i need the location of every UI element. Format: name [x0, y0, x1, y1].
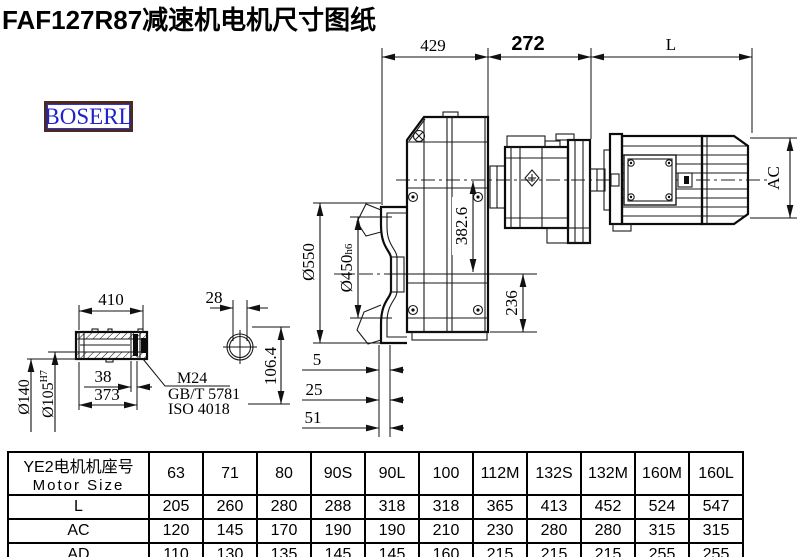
dim-38-373-group: 38 373: [79, 361, 152, 410]
dim-106-group: 106.4: [248, 327, 290, 404]
dim-550: Ø550: [299, 243, 318, 281]
bore-dimensions: Ø140 Ø105H7: [16, 352, 78, 432]
dim-382-group: 382.6: [452, 181, 473, 272]
col-112M: 112M: [473, 452, 527, 495]
table-cell: 315: [635, 519, 689, 543]
dim-450-group: Ø450h6: [337, 217, 392, 318]
dim-28: 28: [206, 288, 223, 307]
table-row-AD: AD 110 130 135 145 145 160 215 215 215 2…: [8, 543, 743, 557]
table-cell: 215: [527, 543, 581, 557]
table-cell: 130: [203, 543, 257, 557]
dim-51: 51: [305, 408, 322, 427]
row-label: AC: [8, 519, 149, 543]
dim-272: 272: [511, 33, 544, 55]
table-cell: 318: [365, 495, 419, 519]
col-160L: 160L: [689, 452, 743, 495]
dim-105: Ø105H7: [39, 370, 57, 418]
table-cell: 145: [311, 543, 365, 557]
table-cell: 145: [203, 519, 257, 543]
col-80: 80: [257, 452, 311, 495]
table-cell: 315: [689, 519, 743, 543]
table-cell: 280: [257, 495, 311, 519]
col-63: 63: [149, 452, 203, 495]
col-160M: 160M: [635, 452, 689, 495]
shaft-end-section: [223, 300, 257, 364]
table-cell: 120: [149, 519, 203, 543]
table-cell: 452: [581, 495, 635, 519]
dim-236-group: 236: [490, 274, 537, 332]
row-label: L: [8, 495, 149, 519]
col-132S: 132S: [527, 452, 581, 495]
output-flange: [357, 204, 407, 437]
table-cell: 280: [581, 519, 635, 543]
hollow-shaft-detail: 410 Ø140 Ø105H7 38 373: [16, 288, 290, 432]
gearbox-housing: [407, 112, 488, 340]
table-header-label: YE2电机机座号 Motor Size: [8, 452, 149, 495]
col-90L: 90L: [365, 452, 419, 495]
table-header-row: YE2电机机座号 Motor Size 63 71 80 90S 90L 100…: [8, 452, 743, 495]
offset-dimensions: 5 25 51: [302, 350, 404, 428]
table-cell: 318: [419, 495, 473, 519]
table-cell: 160: [419, 543, 473, 557]
table-cell: 230: [473, 519, 527, 543]
diamond-bolt-icon: [525, 170, 539, 186]
table-cell: 547: [689, 495, 743, 519]
table-cell: 215: [581, 543, 635, 557]
thread-spec: M24 GB/T 5781 ISO 4018: [143, 359, 240, 418]
col-100: 100: [419, 452, 473, 495]
table-cell: 135: [257, 543, 311, 557]
table-cell: 110: [149, 543, 203, 557]
table-cell: 215: [473, 543, 527, 557]
dim-106: 106.4: [261, 346, 280, 385]
col-90S: 90S: [311, 452, 365, 495]
thread-label: M24: [177, 370, 207, 387]
input-adapter: [490, 134, 605, 243]
table-cell: 280: [527, 519, 581, 543]
dim-429: 429: [420, 36, 446, 55]
main-view-gearmotor: 429 272 L AC 382.6 236: [299, 33, 797, 437]
table-cell: 190: [311, 519, 365, 543]
dim-25: 25: [306, 380, 323, 399]
table-cell: 288: [311, 495, 365, 519]
dim-28-group: 28: [206, 288, 269, 308]
table-cell: 205: [149, 495, 203, 519]
dim-236: 236: [502, 290, 521, 316]
table-row-AC: AC 120 145 170 190 190 210 230 280 280 3…: [8, 519, 743, 543]
motor: [604, 134, 748, 231]
table-cell: 190: [365, 519, 419, 543]
table-row-L: L 205 260 280 288 318 318 365 413 452 52…: [8, 495, 743, 519]
dim-AC: AC: [764, 166, 783, 190]
dim-382: 382.6: [452, 207, 471, 245]
table-cell: 145: [365, 543, 419, 557]
dim-410-group: 410: [79, 290, 143, 330]
col-71: 71: [203, 452, 257, 495]
table-cell: 210: [419, 519, 473, 543]
table-cell: 365: [473, 495, 527, 519]
table-cell: 413: [527, 495, 581, 519]
table-cell: 524: [635, 495, 689, 519]
dim-410: 410: [98, 290, 124, 309]
table-cell: 255: [689, 543, 743, 557]
table-cell: 260: [203, 495, 257, 519]
dim-38: 38: [95, 367, 112, 386]
dim-450: Ø450h6: [337, 243, 356, 292]
row-label: AD: [8, 543, 149, 557]
table-cell: 170: [257, 519, 311, 543]
dim-5: 5: [313, 350, 322, 369]
ac-dimension: AC: [750, 138, 797, 218]
dim-373: 373: [94, 385, 120, 404]
drawing-sheet: FAF127R87减速机电机尺寸图纸 BOSERL: [0, 0, 800, 557]
std2-label: ISO 4018: [168, 401, 230, 418]
motor-size-table: YE2电机机座号 Motor Size 63 71 80 90S 90L 100…: [7, 451, 744, 557]
cover-bolts: [409, 193, 483, 315]
dim-L: L: [666, 35, 676, 54]
table-cell: 255: [635, 543, 689, 557]
dim-140: Ø140: [16, 379, 33, 415]
col-132M: 132M: [581, 452, 635, 495]
bolt-icon: [414, 131, 425, 142]
